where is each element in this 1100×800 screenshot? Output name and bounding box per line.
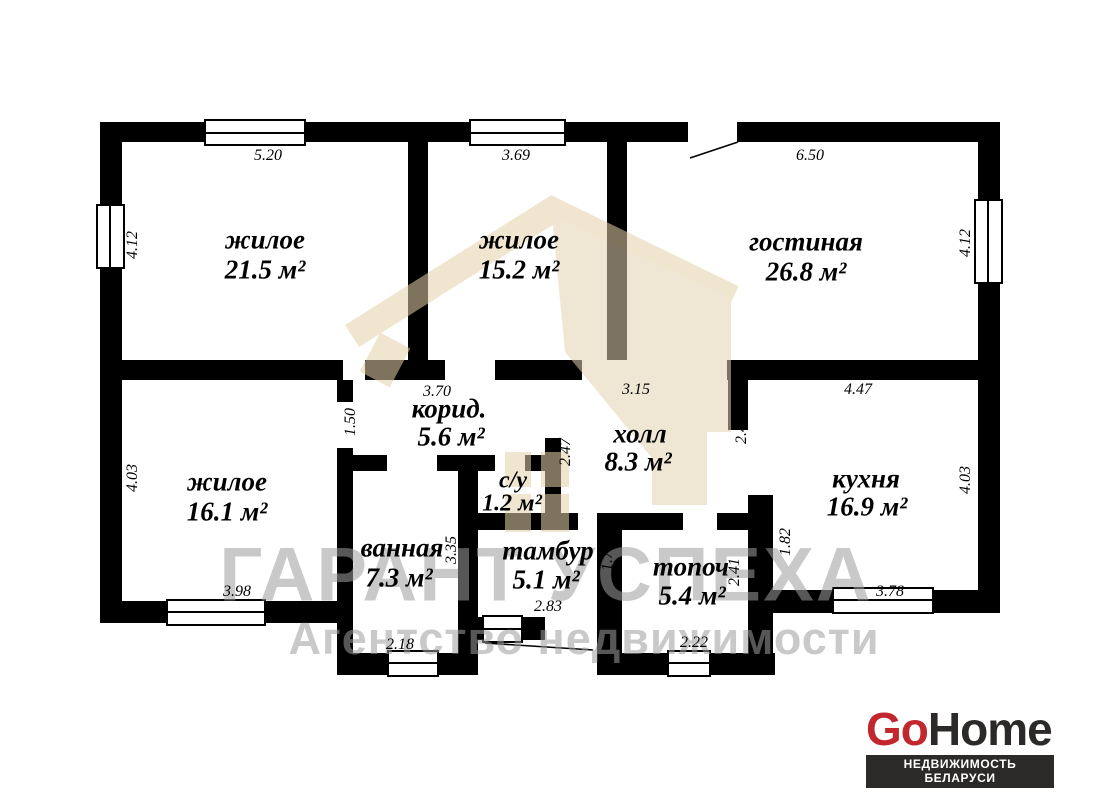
dimension-label: 4.12	[124, 231, 142, 259]
room-area: 5.4 м²	[658, 581, 725, 612]
dimension-label: 4.03	[957, 466, 975, 494]
window	[483, 616, 522, 642]
entrance-door-line	[690, 142, 738, 158]
dimension-label: 5.20	[254, 147, 282, 165]
logo-home: Home	[928, 703, 1052, 755]
room-area: 7.3 м²	[365, 563, 432, 594]
room-area: 26.8 м²	[766, 257, 847, 288]
room-area: 5.1 м²	[512, 565, 579, 596]
room-name: жилое	[187, 467, 267, 498]
dimension-label: 2.47	[557, 438, 575, 466]
dimension-label: 2.83	[534, 598, 562, 616]
dimension-label: 3.98	[223, 583, 251, 601]
logo-tagline-bar: НЕДВИЖИМОСТЬ БЕЛАРУСИ	[866, 755, 1054, 788]
floor-plan-page: ГАРАНТ УСПЕХА Агентство недвижимости	[0, 0, 1100, 800]
dimension-label: 3.69	[502, 147, 530, 165]
dimension-label: 3.78	[876, 583, 904, 601]
dimension-label: 2.41	[726, 558, 744, 586]
room-area: 1.2 м²	[482, 491, 542, 518]
room-name: жилое	[225, 225, 305, 256]
gohome-logo-text: GoHome	[866, 706, 1054, 752]
room-area: 21.5 м²	[225, 255, 306, 286]
dimension-label: 1.82	[777, 528, 795, 556]
room-name: гостиная	[749, 227, 863, 258]
floor-plan-drawing	[0, 0, 1100, 800]
room-area: 8.3 м²	[604, 447, 671, 478]
room-name: ванная	[361, 533, 444, 564]
dimension-label: 2.18	[386, 636, 414, 654]
room-area: 15.2 м²	[479, 255, 560, 286]
window	[975, 200, 1002, 283]
room-name: холл	[613, 419, 666, 450]
room-area: 5.6 м²	[417, 422, 484, 453]
dimension-label: 4.12	[957, 229, 975, 257]
dimension-label: 1.78	[599, 543, 617, 571]
dimension-label: 3.35	[443, 536, 461, 564]
dimension-label: 6.50	[796, 147, 824, 165]
dimension-label: 4.12	[412, 233, 430, 261]
room-name: топоч	[653, 552, 729, 583]
dimension-label: 2.22	[680, 634, 708, 652]
dimension-label: 3.70	[423, 383, 451, 401]
dimension-label: 3.15	[622, 381, 650, 399]
dimension-label: 4.47	[844, 381, 872, 399]
gohome-logo: GoHome НЕДВИЖИМОСТЬ БЕЛАРУСИ	[866, 706, 1054, 788]
logo-go: Go	[866, 703, 928, 755]
window	[205, 120, 305, 145]
window	[388, 651, 438, 676]
room-name: тамбур	[502, 536, 593, 567]
window	[668, 651, 710, 676]
window	[97, 205, 124, 268]
room-area: 16.1 м²	[187, 497, 268, 528]
window	[470, 120, 565, 145]
room-area: 16.9 м²	[827, 492, 908, 523]
room-name: жилое	[479, 225, 559, 256]
dimension-label: 2.46	[733, 416, 751, 444]
window	[167, 600, 265, 625]
dimension-label: 4.03	[124, 464, 142, 492]
porch-door-line	[485, 643, 593, 650]
dimension-label: 1.50	[342, 408, 360, 436]
room-name: кухня	[832, 464, 900, 495]
